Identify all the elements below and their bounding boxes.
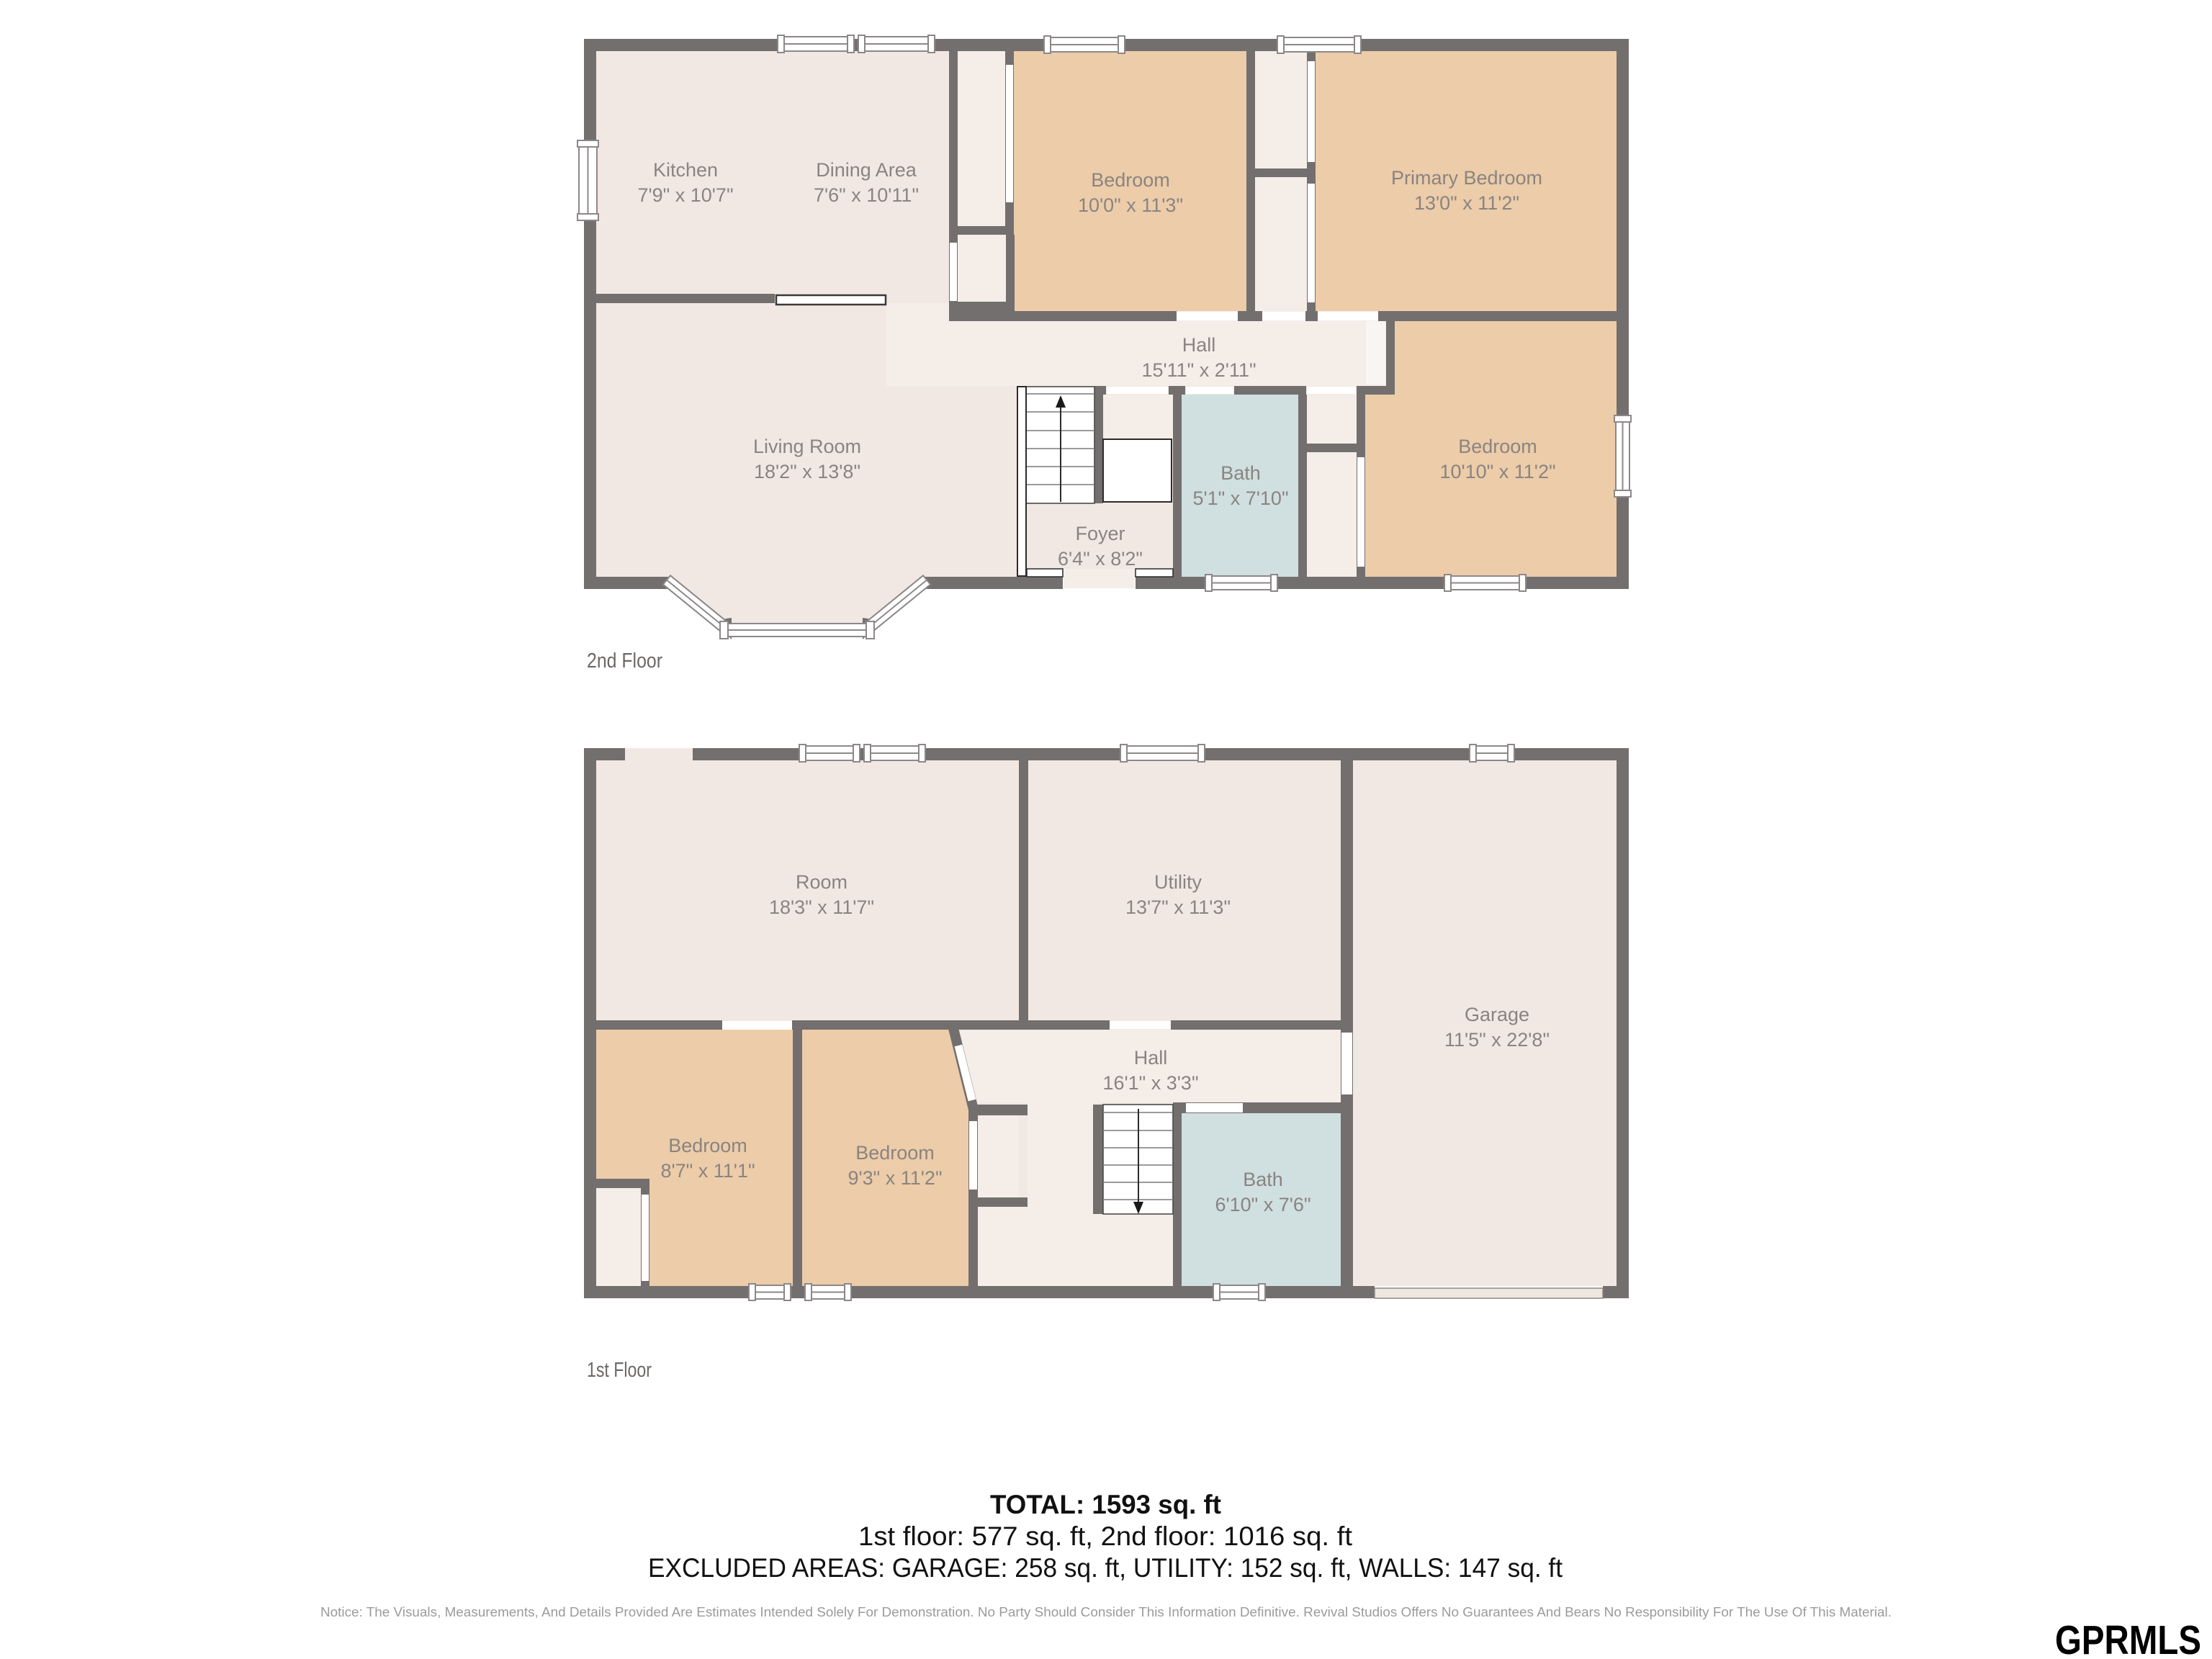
svg-text:13'7" x 11'3": 13'7" x 11'3" bbox=[1125, 896, 1231, 918]
svg-text:10'10" x 11'2": 10'10" x 11'2" bbox=[1439, 461, 1555, 482]
svg-text:Bedroom: Bedroom bbox=[1091, 169, 1170, 191]
svg-text:1st Floor: 1st Floor bbox=[587, 1359, 652, 1382]
svg-text:Notice: The Visuals, Measureme: Notice: The Visuals, Measurements, And D… bbox=[320, 1605, 1892, 1619]
svg-text:8'7" x 11'1": 8'7" x 11'1" bbox=[660, 1160, 755, 1182]
svg-text:9'3" x 11'2": 9'3" x 11'2" bbox=[848, 1167, 942, 1189]
svg-text:Dining Area: Dining Area bbox=[816, 159, 917, 181]
svg-text:Garage: Garage bbox=[1465, 1004, 1529, 1025]
svg-text:Hall: Hall bbox=[1182, 334, 1216, 356]
svg-text:Primary Bedroom: Primary Bedroom bbox=[1391, 167, 1542, 189]
svg-text:GPRMLS: GPRMLS bbox=[2055, 1617, 2201, 1659]
svg-text:Foyer: Foyer bbox=[1075, 523, 1125, 544]
svg-text:7'6" x 10'11": 7'6" x 10'11" bbox=[814, 184, 919, 206]
svg-text:2nd Floor: 2nd Floor bbox=[587, 649, 662, 673]
svg-text:1st floor: 577 sq. ft, 2nd flo: 1st floor: 577 sq. ft, 2nd floor: 1016 s… bbox=[858, 1521, 1353, 1551]
svg-text:Bedroom: Bedroom bbox=[668, 1135, 747, 1156]
svg-text:Living Room: Living Room bbox=[753, 436, 861, 457]
svg-text:Bedroom: Bedroom bbox=[855, 1142, 935, 1164]
svg-text:10'0" x 11'3": 10'0" x 11'3" bbox=[1078, 194, 1183, 216]
svg-text:Bath: Bath bbox=[1220, 462, 1261, 484]
svg-text:16'1" x 3'3": 16'1" x 3'3" bbox=[1102, 1072, 1198, 1094]
svg-text:EXCLUDED AREAS: GARAGE: 258 sq: EXCLUDED AREAS: GARAGE: 258 sq. ft, UTIL… bbox=[648, 1553, 1563, 1583]
svg-text:TOTAL: 1593 sq. ft: TOTAL: 1593 sq. ft bbox=[990, 1490, 1221, 1519]
svg-text:18'3" x 11'7": 18'3" x 11'7" bbox=[769, 896, 874, 918]
svg-text:7'9" x 10'7": 7'9" x 10'7" bbox=[637, 184, 733, 206]
svg-text:11'5" x 22'8": 11'5" x 22'8" bbox=[1444, 1029, 1550, 1051]
svg-text:Kitchen: Kitchen bbox=[653, 159, 718, 181]
svg-text:Utility: Utility bbox=[1154, 871, 1202, 893]
svg-text:Room: Room bbox=[796, 871, 848, 893]
svg-text:5'1" x 7'10": 5'1" x 7'10" bbox=[1192, 487, 1288, 509]
svg-text:Bath: Bath bbox=[1243, 1169, 1283, 1190]
svg-text:6'4" x 8'2": 6'4" x 8'2" bbox=[1058, 548, 1143, 570]
svg-text:6'10" x 7'6": 6'10" x 7'6" bbox=[1215, 1194, 1310, 1215]
svg-text:Hall: Hall bbox=[1134, 1047, 1168, 1069]
svg-text:Bedroom: Bedroom bbox=[1458, 436, 1537, 457]
svg-text:13'0" x 11'2": 13'0" x 11'2" bbox=[1414, 192, 1519, 214]
svg-text:18'2" x 13'8": 18'2" x 13'8" bbox=[754, 461, 860, 482]
svg-text:15'11" x 2'11": 15'11" x 2'11" bbox=[1141, 359, 1256, 381]
